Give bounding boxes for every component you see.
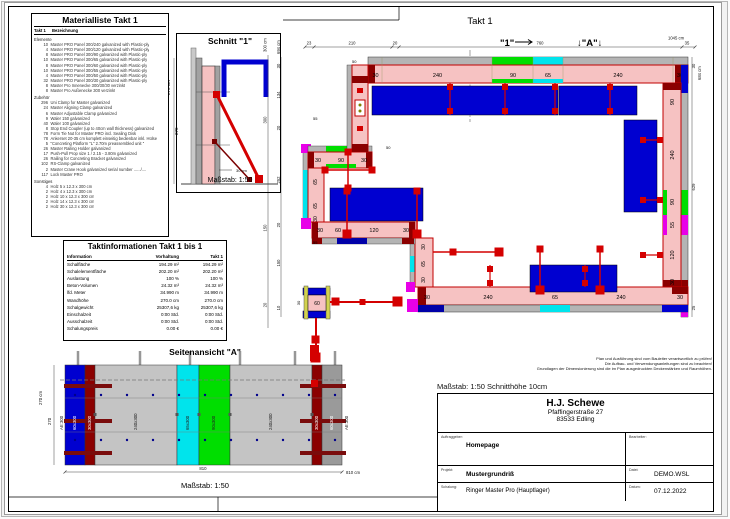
taktinfo-header: Information Vorhaltung Takt 1 xyxy=(67,253,223,261)
taktinfo-cell: Schalfläche xyxy=(67,261,129,268)
taktinfo-panel: Taktinformationen Takt 1 bis 1 Informati… xyxy=(63,240,227,341)
wall-dim: 65 xyxy=(421,261,427,267)
wall-dim: 90 xyxy=(670,99,676,105)
panel-label: 30x300 xyxy=(87,415,92,430)
tie-dot xyxy=(282,394,284,396)
panel-label: 240x300 xyxy=(268,413,273,430)
tie-dot xyxy=(204,394,206,396)
tie-dot xyxy=(126,439,128,441)
platform xyxy=(372,86,558,115)
taktinfo-row: Schalungspreis0.00 €0.00 € xyxy=(67,325,223,332)
tie-dot xyxy=(126,394,128,396)
taktinfo-cell: 24.32 m³ xyxy=(129,282,179,289)
wall-dim: 120 xyxy=(369,228,378,234)
taktinfo-cell: 194.29 m² xyxy=(179,261,223,268)
tie-dot xyxy=(204,439,206,441)
wall-dim: 30 xyxy=(421,277,427,283)
taktinfo-cell: 25307,6 kg xyxy=(179,304,223,311)
dim: 35 xyxy=(685,41,690,46)
taktinfo-cell: Ausschalzeit xyxy=(67,318,129,325)
panel-label: 60x300 xyxy=(72,415,77,430)
taktinfo-cell: 0:00 Std. xyxy=(179,311,223,318)
taktinfo-col: Information xyxy=(67,253,129,260)
schnitt-title: Schnitt "1" xyxy=(186,36,274,46)
taktinfo-cell: 270.0 cm xyxy=(129,297,179,304)
cut-label-1: "1" xyxy=(500,38,514,49)
taktinfo-cell: 194.29 m² xyxy=(129,261,179,268)
tie-plate xyxy=(582,266,588,272)
dim: 270 xyxy=(47,417,52,425)
taktinfo-row: Schalgewicht25307,6 kg25307,6 kg xyxy=(67,304,223,311)
material-qty: 2 xyxy=(34,204,48,209)
wall-dim: 65 xyxy=(552,295,558,301)
tie-dot xyxy=(152,439,154,441)
auftraggeber-cell: Auftraggeber: Homepage xyxy=(438,433,626,465)
wall-dim: 90 xyxy=(338,158,344,164)
tie-dot xyxy=(74,439,76,441)
taktinfo-cell: Auslastung xyxy=(67,275,129,282)
schnitt-panel xyxy=(176,33,281,193)
joint-marker xyxy=(198,413,201,416)
tie-dot xyxy=(230,394,232,396)
dim: 23 xyxy=(307,41,312,46)
wall-dim: 30 xyxy=(361,158,367,164)
taktinfo-col: Vorhaltung xyxy=(129,253,179,260)
tie-dot xyxy=(230,439,232,441)
taktinfo-cell: Wandhöhe xyxy=(67,297,129,304)
taktinfo-cell: 25307,6 kg xyxy=(129,304,179,311)
taktinfo-cell: Schalelementfläche xyxy=(67,268,129,275)
taktinfo-cell: 0:00 Std. xyxy=(129,318,179,325)
tie-plate xyxy=(657,197,663,203)
bearbeiter-label: Bearbeiter: xyxy=(629,435,647,439)
projekt-value: Mustergrundriß xyxy=(466,471,514,478)
title-block-header: H.J. Schewe Pfaffingerstraße 27 83533 Ed… xyxy=(438,394,713,433)
tie-plate xyxy=(552,108,558,114)
material-desc: Holz 30 x 12.3 x 300 cm xyxy=(48,204,94,209)
material-row: 117Lock Master PRO xyxy=(34,172,166,177)
material-qty: 8 xyxy=(34,88,48,93)
misc-dim: 50 xyxy=(352,59,357,64)
taktinfo-cell: 34.990 m xyxy=(179,289,223,296)
misc-dim: 55 xyxy=(313,240,318,245)
tie-dot xyxy=(100,394,102,396)
company-name: H.J. Schewe xyxy=(438,394,713,409)
col-takt: Takt 1 xyxy=(34,28,52,33)
joint-marker xyxy=(176,413,179,416)
tie-plate xyxy=(502,84,508,90)
wall-dim: 30 xyxy=(421,244,427,250)
bearbeiter-cell: Bearbeiter: xyxy=(626,433,713,465)
tie-dot xyxy=(308,439,310,441)
taktinfo-cell: 202.20 m² xyxy=(179,268,223,275)
misc-dim: 55 xyxy=(313,116,318,121)
taktinfo-cell: Schalungspreis xyxy=(67,325,129,332)
dim: 20 xyxy=(276,222,281,227)
wall-dim: 240 xyxy=(433,73,442,79)
materialliste-header: Takt 1 Bezeichnung xyxy=(34,27,166,35)
dim: 629 xyxy=(691,183,696,191)
taktinfo-row: Beton-Volumen24.32 m³24.32 m³ xyxy=(67,282,223,289)
panel-label: 240x300 xyxy=(133,413,138,430)
dim: 150 xyxy=(276,259,281,267)
tie-plate xyxy=(607,108,613,114)
dim: 20 xyxy=(393,41,398,46)
side-view-scale: Maßstab: 1:50 xyxy=(140,481,270,490)
dim: 20 xyxy=(263,302,268,307)
schalung-cell: Schalung: Ringer Master Pro (Hauptlager) xyxy=(438,483,626,501)
dim-total: 1045 cm xyxy=(668,36,685,41)
wall-dim: 120 xyxy=(670,250,676,259)
wall-dim: 240 xyxy=(483,295,492,301)
material-desc: Master Pro Außenecke 300 verzinkt xyxy=(48,88,115,93)
taktinfo-cell: 270.0 cm xyxy=(179,297,223,304)
dim: 810 xyxy=(199,466,207,471)
taktinfo-cell: 100 % xyxy=(179,275,223,282)
wall-dim: 90 xyxy=(510,73,516,79)
schalung-label: Schalung: xyxy=(441,485,457,489)
taktinfo-row: Schalfläche194.29 m²194.29 m² xyxy=(67,261,223,268)
tie-plate xyxy=(640,252,646,258)
dim: 25 xyxy=(691,305,696,310)
company-address1: Pfaffingerstraße 27 xyxy=(438,409,713,416)
dim-total: 270 cm xyxy=(38,390,43,405)
wall-dim: 30 xyxy=(372,73,378,79)
wall-dim: 30 xyxy=(313,216,319,222)
taktinfo-row: Wandhöhe270.0 cm270.0 cm xyxy=(67,297,223,304)
wall-dim: 240 xyxy=(616,295,625,301)
tie-plate xyxy=(487,266,493,272)
tie-dot xyxy=(334,394,336,396)
auftraggeber-label: Auftraggeber: xyxy=(441,435,463,439)
projekt-cell: Projekt: Mustergrundriß xyxy=(438,466,626,482)
tie-plate xyxy=(607,84,613,90)
taktinfo-cell: 202.20 m² xyxy=(129,268,179,275)
view-label-a: ↓"A"↓ xyxy=(577,38,602,49)
auftraggeber-value: Homepage xyxy=(466,442,499,449)
datei-label: Datei: xyxy=(629,468,638,472)
wall-dim: 30 xyxy=(677,295,683,301)
material-row: 8Master Pro Außenecke 300 verzinkt xyxy=(34,88,166,93)
side-view-drawing: AE:300 60x300 30x300 240x300 65x300 90x3… xyxy=(38,345,361,475)
footer-notes: Plan und Ausführung sind vom Bauleiter v… xyxy=(420,357,712,372)
dim: 150 xyxy=(263,224,268,232)
tie-plate xyxy=(502,108,508,114)
taktinfo-cell: Beton-Volumen xyxy=(67,282,129,289)
taktinfo-row: Einschalzeit0:00 Std.0:00 Std. xyxy=(67,311,223,318)
taktinfo-cell: 0.00 € xyxy=(129,325,179,332)
datum-label: Datum: xyxy=(629,485,641,489)
wall-dim: 65 xyxy=(313,203,319,209)
side-red-prop-head xyxy=(310,345,319,361)
taktinfo-col: Takt 1 xyxy=(179,253,223,260)
wall-dim: 30 xyxy=(315,158,321,164)
taktinfo-cell: Schalgewicht xyxy=(67,304,129,311)
column-side-label: 30 xyxy=(296,300,301,305)
taktinfo-cell: 100 % xyxy=(129,275,179,282)
company-address2: 83533 Edling xyxy=(438,416,713,423)
wall-dim: 30 xyxy=(670,279,676,285)
tie-dot xyxy=(308,394,310,396)
panel-label: AE:300 xyxy=(344,415,349,430)
tie-plate xyxy=(487,280,493,286)
tie-dot xyxy=(256,394,258,396)
wall-dim: 30 xyxy=(424,295,430,301)
panel-label: 30x300 xyxy=(314,415,319,430)
materialliste-panel: Materialliste Takt 1 Takt 1 Bezeichnung … xyxy=(31,13,169,237)
tie-dot xyxy=(282,439,284,441)
tie-plate xyxy=(657,252,663,258)
dim-total: 810 cm xyxy=(346,470,361,475)
plan-title: Takt 1 xyxy=(467,16,492,27)
projekt-label: Projekt: xyxy=(441,468,453,472)
materialliste-title: Materialliste Takt 1 xyxy=(34,15,166,27)
wall-dim: 60 xyxy=(335,228,341,234)
panel-label: 60x300 xyxy=(329,415,334,430)
datum-cell: Datum: 07.12.2022 xyxy=(626,483,713,501)
panel-label: AE:300 xyxy=(59,415,64,430)
schnitt-scale: Maßstab: 1:50 xyxy=(186,177,274,184)
taktinfo-cell: Einschalzeit xyxy=(67,311,129,318)
taktinfo-row: Auslastung100 %100 % xyxy=(67,275,223,282)
material-desc: Lock Master PRO xyxy=(48,172,83,177)
taktinfo-rows: Schalfläche194.29 m²194.29 m²Schalelemen… xyxy=(67,261,223,332)
tie-plate xyxy=(552,84,558,90)
plan-scale-line: Maßstab: 1:50 Schnitthöhe 10cm xyxy=(437,382,547,391)
tie-plate xyxy=(657,137,663,143)
wall-dim: 30 xyxy=(317,228,323,234)
wall-dim: 65 xyxy=(545,73,551,79)
column-width-label: 60 xyxy=(314,301,320,307)
tie-dot xyxy=(334,439,336,441)
datei-value: DEMO.WSL xyxy=(654,471,689,478)
tie-plate xyxy=(640,137,646,143)
tie-plate xyxy=(447,84,453,90)
material-row: 2Holz 30 x 12.3 x 300 cm xyxy=(34,204,166,209)
materialliste-groups: Elemente10Master PRO Panel 300/240 galva… xyxy=(34,37,166,209)
taktinfo-cell: 0:00 Std. xyxy=(129,311,179,318)
tie-dot xyxy=(178,394,180,396)
plan-drawing: Takt 1 "1" ↓"A"↓ "1" 30 240 90 65 240 30 xyxy=(301,16,688,317)
wall-dim: 30 xyxy=(403,228,409,234)
datei-cell: Datei: DEMO.WSL xyxy=(626,466,713,482)
joint-marker xyxy=(311,413,314,416)
tie-dot xyxy=(256,439,258,441)
note-line: Grundlagen der Dimensionierung sind die … xyxy=(420,367,712,372)
dim: 10 xyxy=(276,305,281,310)
taktinfo-row: Ausschalzeit0:00 Std.0:00 Std. xyxy=(67,318,223,325)
taktinfo-cell: lfd. Meter xyxy=(67,289,129,296)
joint-marker xyxy=(229,413,232,416)
platform xyxy=(559,86,637,115)
dim: 760 xyxy=(537,41,545,46)
dim: 30 xyxy=(691,63,696,68)
tie-dot xyxy=(178,439,180,441)
panel-label: 65x300 xyxy=(185,415,190,430)
tie-dot xyxy=(100,439,102,441)
taktinfo-cell: 34.990 m xyxy=(129,289,179,296)
col-bezeichnung: Bezeichnung xyxy=(52,28,78,33)
tie-dot xyxy=(74,394,76,396)
taktinfo-row: Schalelementfläche202.20 m²202.20 m² xyxy=(67,268,223,275)
panel-label: 90x300 xyxy=(211,415,216,430)
tie-plate xyxy=(447,108,453,114)
tie-plate xyxy=(582,280,588,286)
tie-plate xyxy=(640,197,646,203)
taktinfo-cell: 0:00 Std. xyxy=(179,318,223,325)
taktinfo-title: Taktinformationen Takt 1 bis 1 xyxy=(67,242,223,253)
wall-dim: 55 xyxy=(670,222,676,228)
wall-dim: 240 xyxy=(670,150,676,159)
taktinfo-cell: 0.00 € xyxy=(179,325,223,332)
wall-dim: 90 xyxy=(670,199,676,205)
wall-dim: 65 xyxy=(313,179,319,185)
taktinfo-row: lfd. Meter34.990 m34.990 m xyxy=(67,289,223,296)
joint-marker xyxy=(94,413,97,416)
misc-dim: 50 xyxy=(386,145,391,150)
tie-dot xyxy=(152,394,154,396)
side-view-title: Seitenansicht "A" xyxy=(110,347,300,357)
dim: 210 xyxy=(349,41,357,46)
title-block: H.J. Schewe Pfaffingerstraße 27 83533 Ed… xyxy=(437,393,714,512)
datum-value: 07.12.2022 xyxy=(654,488,687,495)
taktinfo-cell: 24.32 m³ xyxy=(179,282,223,289)
wall-dim: 240 xyxy=(613,73,622,79)
dim-total: 684 cm xyxy=(697,66,702,80)
schalung-value: Ringer Master Pro (Hauptlager) xyxy=(466,488,550,494)
material-qty: 117 xyxy=(34,172,48,177)
